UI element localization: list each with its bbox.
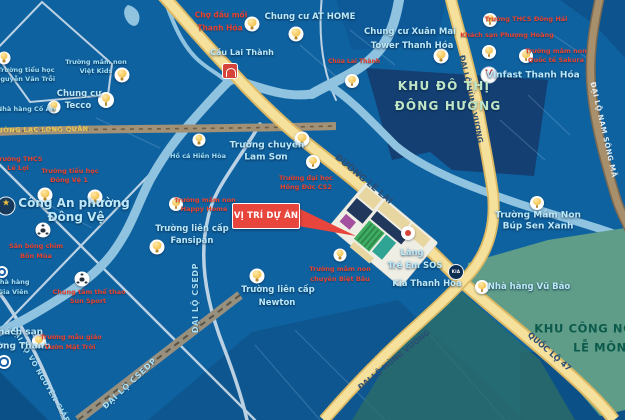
label-khach-san-muong-thanh: Mường Thanh [0,343,50,352]
label-truong-lien-cap-fansipan: Fansipan [171,237,214,246]
zone-label-khu-do-thi-dong-huong: KHU ĐÔ THỊ [398,80,490,92]
label-cho-dau-moi-thanh-hoa: Thanh Hóa [197,24,242,32]
label-truong-mam-non-quoc-te-sakura: Quốc tế Sakura [528,57,584,64]
soccer-ball-icon [36,223,51,238]
road-label-duong-lac-long-quan: ĐƯỜNG LẠC LONG QUÂN [0,126,89,134]
label-truong-mam-non-biet-bau: chuyên Biệt Bầu [310,276,370,283]
label-cong-an-phuong-dong-ve: Đông Vệ [47,211,104,223]
road-label-dai-lo-nam-song-ma: ĐẠI LỘ NAM SÔNG MÃ [589,81,618,178]
label-nha-hang-gia-vien: Nhà hàng [0,279,30,286]
lightbulb-icon [193,134,206,147]
label-lang-tre-em-sos: Trẻ Em SOS [388,262,443,271]
label-truong-mam-non-biet-bau: Trường mầm non [309,266,370,273]
label-chung-cu-xuan-mai: Tower Thanh Hóa [371,42,454,51]
lightbulb-icon [434,49,449,64]
label-san-bong-chim-bon-mua: Bốn Mùa [20,253,52,260]
road-label-quoc-lo-47: QUỐC LỘ 47 [526,331,572,373]
label-truong-mam-non-viet-kids: Trường mầm non [65,59,126,66]
label-truong-mam-non-bup-sen-xanh: Búp Sen Xanh [503,223,574,232]
label-trung-tam-the-thao-sun-sport: Sun Sport [70,298,106,305]
project-location-map: Trường tiểu họcNguyễn Văn TrỗiTrường mầm… [0,0,625,420]
label-truong-dai-hoc-hong-duc-cs2: Hồng Đức CS2 [280,184,332,191]
label-chung-cu-xuan-mai: Chung cư Xuân Mai [364,28,456,37]
label-truong-mam-non-happy-home: Happy Home [181,206,228,213]
label-vinfast-thanh-hoa: Vinfast Thanh Hóa [486,72,579,81]
label-cau-lai-thanh: Cầu Lai Thành [210,49,274,57]
zone-label-khu-cong-nghiep-le-mon: LỄ MÔN [573,342,625,354]
labels-layer: Trường tiểu họcNguyễn Văn TrỗiTrường mầm… [0,0,625,420]
label-truong-tieu-hoc-dong-ve-1: Đông Vệ 1 [50,177,88,184]
label-nha-hang-co-an: Nhà hàng Cố Ẩn [0,106,55,113]
lightbulb-icon [150,240,165,255]
hotel-logo-icon [0,355,11,369]
label-truong-dai-hoc-hong-duc-cs2: Trường đại học [279,175,333,182]
hotel-logo-icon [0,266,8,278]
label-khach-san-muong-thanh: Khách sạn [0,329,43,338]
road-label-duong-le-lai: ĐƯỜNG LÊ LAI [333,153,394,206]
label-truong-mam-non-bup-sen-xanh: Trường Mầm Non [495,212,581,221]
lightbulb-icon [334,249,347,262]
label-chung-cu-at-home: Chung cư AT HOME [265,13,356,22]
lightbulb-icon [250,269,265,284]
label-truong-mam-non-quoc-te-sakura: Trường mầm non [525,48,586,55]
label-truong-chuyen-lam-son: Lam Sơn [244,154,287,163]
label-truong-thcs-dong-hai: Trường THCS Đông Hải [485,16,568,23]
label-kia-thanh-hoa: Kia Thanh Hóa [392,280,462,289]
label-khach-san-phuong-hoang: Khách sạn Phượng Hoàng [460,32,554,39]
lightbulb-icon [482,45,496,59]
sos-village-icon [401,226,415,240]
label-cong-an-phuong-dong-ve: Công An phường [18,197,129,209]
label-chua-lai-thanh: Chùa Lai Thành [328,59,380,65]
label-truong-tieu-hoc-nguyen-van-troi: Trường tiểu học [0,67,55,74]
police-badge-icon [0,197,16,216]
label-nha-hang-gia-vien: Gia Viên [0,289,28,296]
label-truong-mau-giao-vuon-mat-troi: Trường mẫu giáo [40,334,101,341]
label-truong-tieu-hoc-nguyen-van-troi: Nguyễn Văn Trỗi [0,76,55,83]
road-label-dai-lo-hung-vuong-south: ĐẠI LỘ HÙNG VƯƠNG [357,329,431,391]
callout-label: VỊ TRÍ DỰ ÁN [234,211,298,221]
lightbulb-icon [306,155,320,169]
label-truong-chuyen-lam-son: Trường chuyên [230,142,305,151]
road-label-dai-lo-csedp-diagonal: ĐẠI LỘ CSEDP [102,357,159,411]
lightbulb-icon [345,74,359,88]
road-label-dai-lo-csedp-vertical: ĐẠI LỘ CSEDP [192,263,200,333]
project-location-callout: VỊ TRÍ DỰ ÁN [232,203,300,229]
label-truong-mam-non-viet-kids: Việt Kids [80,68,113,75]
label-trung-tam-the-thao-sun-sport: Chung tâm thể thao [52,289,125,296]
bridge-icon [222,63,238,79]
kia-logo-icon [448,264,464,280]
label-truong-thcs-le-loi: Lê Lợi [7,165,29,172]
label-truong-mau-giao-vuon-mat-troi: Vườn Mặt Trời [45,344,96,351]
label-chung-cu-tecco: Chung cư [57,90,102,99]
label-san-bong-chim-bon-mua: Sân bóng chim [9,243,63,250]
lightbulb-icon [530,196,544,210]
lightbulb-icon [289,27,304,42]
label-chung-cu-tecco: Tecco [65,102,91,111]
label-truong-tieu-hoc-dong-ve-1: Trường tiểu học [41,168,98,175]
label-lang-tre-em-sos: Làng [400,249,423,258]
label-nha-hang-vu-bao: Nhà hàng Vũ Bảo [488,283,570,292]
lightbulb-icon [115,68,130,83]
label-truong-thcs-le-loi: Trường THCS [0,156,43,163]
lightbulb-icon [0,52,11,65]
label-ho-ca-hien-hoa: Hồ cá Hiền Hòa [170,153,226,160]
label-truong-mam-non-happy-home: Trường mầm non [174,197,235,204]
soccer-ball-icon [75,272,90,287]
label-truong-lien-cap-fansipan: Trường liên cấp [155,225,229,234]
zone-label-khu-cong-nghiep-le-mon: KHU CÔNG NGHIỆP [534,323,625,335]
label-cho-dau-moi-thanh-hoa: Chợ đầu mối [195,11,248,19]
label-truong-lien-cap-newton: Trường liên cấp [241,286,315,295]
label-truong-lien-cap-newton: Newton [259,299,296,308]
zone-label-khu-do-thi-dong-huong: ĐÔNG HƯƠNG [395,100,502,112]
